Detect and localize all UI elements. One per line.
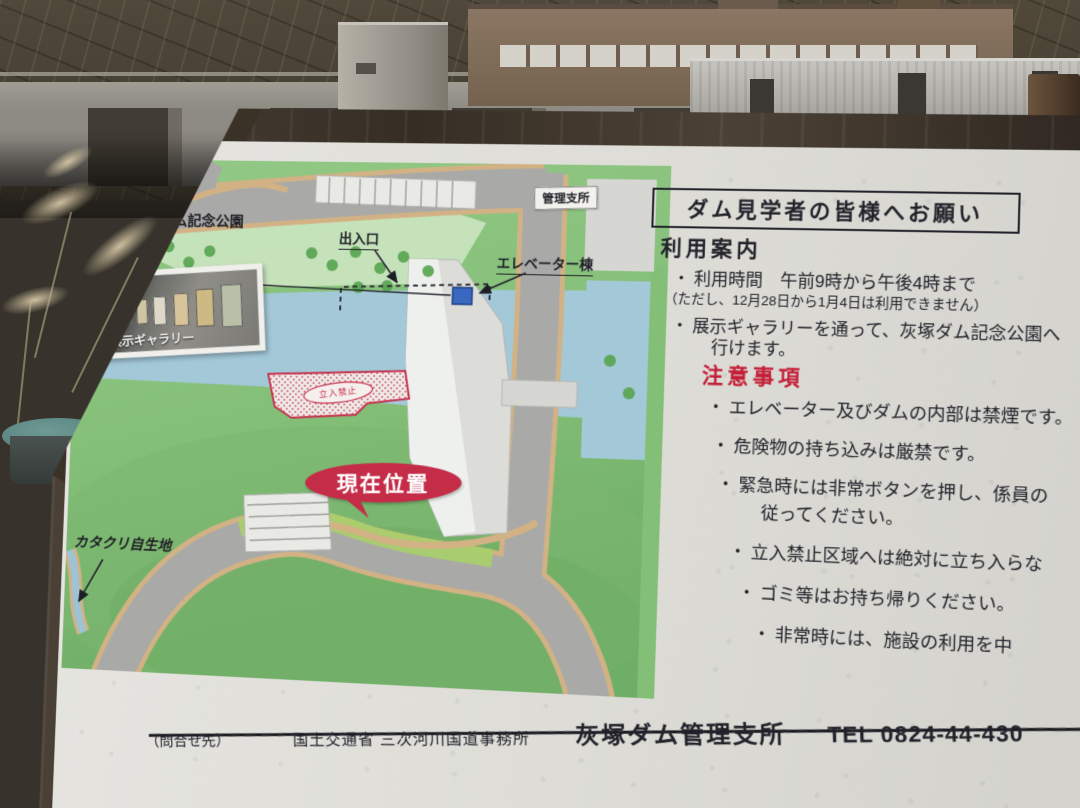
framed-picture	[195, 288, 214, 327]
footer-organization: 国土交通省 三次河川国道事務所	[293, 725, 530, 750]
bullet-icon: ・	[752, 623, 771, 644]
bullet-icon: ・	[712, 435, 730, 456]
rooftop-structure	[718, 0, 778, 9]
information-signboard: 立入禁止 ←灰塚ダム記念公園 出入口 エレベーター棟 管理支	[37, 107, 1080, 808]
site-map: 立入禁止 ←灰塚ダム記念公園 出入口 エレベーター棟 管理支	[61, 159, 671, 699]
framed-picture	[153, 296, 167, 326]
bullet-icon: ・	[671, 316, 689, 335]
katakuri-label: カタクリ自生地	[73, 531, 171, 555]
grass-stem	[34, 212, 72, 358]
caution-item: ・エレベーター及びダムの内部は禁煙です。	[707, 394, 1074, 431]
bullet-icon: ・	[728, 541, 746, 562]
gallery-photo-inset: 展示ギャラリー	[98, 263, 265, 359]
entrance-label: 出入口	[338, 228, 379, 250]
caution-section-title: 注意事項	[701, 359, 804, 392]
framed-picture	[121, 302, 131, 324]
caution-item-line2: 従ってください。	[760, 500, 904, 531]
door	[898, 73, 926, 119]
caution-item: ・ゴミ等はお持ち帰りください。	[737, 579, 1015, 617]
caution-item: ・非常時には、施設の利用を中	[752, 620, 1012, 658]
bullet-icon: ・	[707, 397, 725, 418]
bullet-icon: ・	[672, 269, 690, 288]
footer-office-name: 灰塚ダム管理支所	[575, 714, 787, 751]
framed-picture	[136, 299, 148, 325]
parking-lot-lower	[242, 489, 334, 555]
footer: （問合せ先） 国土交通省 三次河川国道事務所 灰塚ダム管理支所 TEL 0824…	[145, 711, 1080, 753]
rooftop-structure	[898, 0, 940, 9]
bullet-icon: ・	[716, 474, 734, 495]
map-water-right	[581, 280, 653, 460]
pampas-grass	[75, 207, 165, 286]
caution-item: ・危険物の持ち込みは厳禁です。	[711, 432, 986, 467]
admin-office-label: 管理支所	[534, 186, 597, 210]
current-location-badge: 現在位置	[305, 463, 461, 503]
elevator-marker	[452, 287, 472, 304]
usage-section-title: 利用案内	[660, 232, 762, 264]
elevator-hall-label: エレベーター棟	[496, 253, 593, 277]
notice-header-box: ダム見学者の皆様へお願い	[651, 188, 1020, 234]
footer-telephone: TEL 0824-44-430	[827, 720, 1024, 748]
framed-picture	[173, 293, 189, 327]
crest-gate-house	[690, 58, 1080, 118]
gallery-photo: 展示ギャラリー	[104, 269, 260, 353]
pampas-grass	[0, 280, 72, 320]
bullet-icon: ・	[737, 582, 756, 603]
tower-window	[356, 63, 376, 74]
photo-of-dam-sign: 立入禁止 ←灰塚ダム記念公園 出入口 エレベーター棟 管理支	[0, 0, 1080, 808]
caution-item: ・立入禁止区域へは絶対に立ち入らな	[728, 538, 1043, 576]
usage-gallery-route-line2: 行けます。	[711, 333, 797, 360]
sign-panel: 立入禁止 ←灰塚ダム記念公園 出入口 エレベーター棟 管理支	[50, 140, 1080, 808]
framed-picture	[221, 284, 243, 328]
footer-inquiry-label: （問合せ先）	[145, 730, 230, 751]
gallery-caption: 展示ギャラリー	[109, 327, 194, 350]
parking-lot-top	[315, 175, 476, 209]
